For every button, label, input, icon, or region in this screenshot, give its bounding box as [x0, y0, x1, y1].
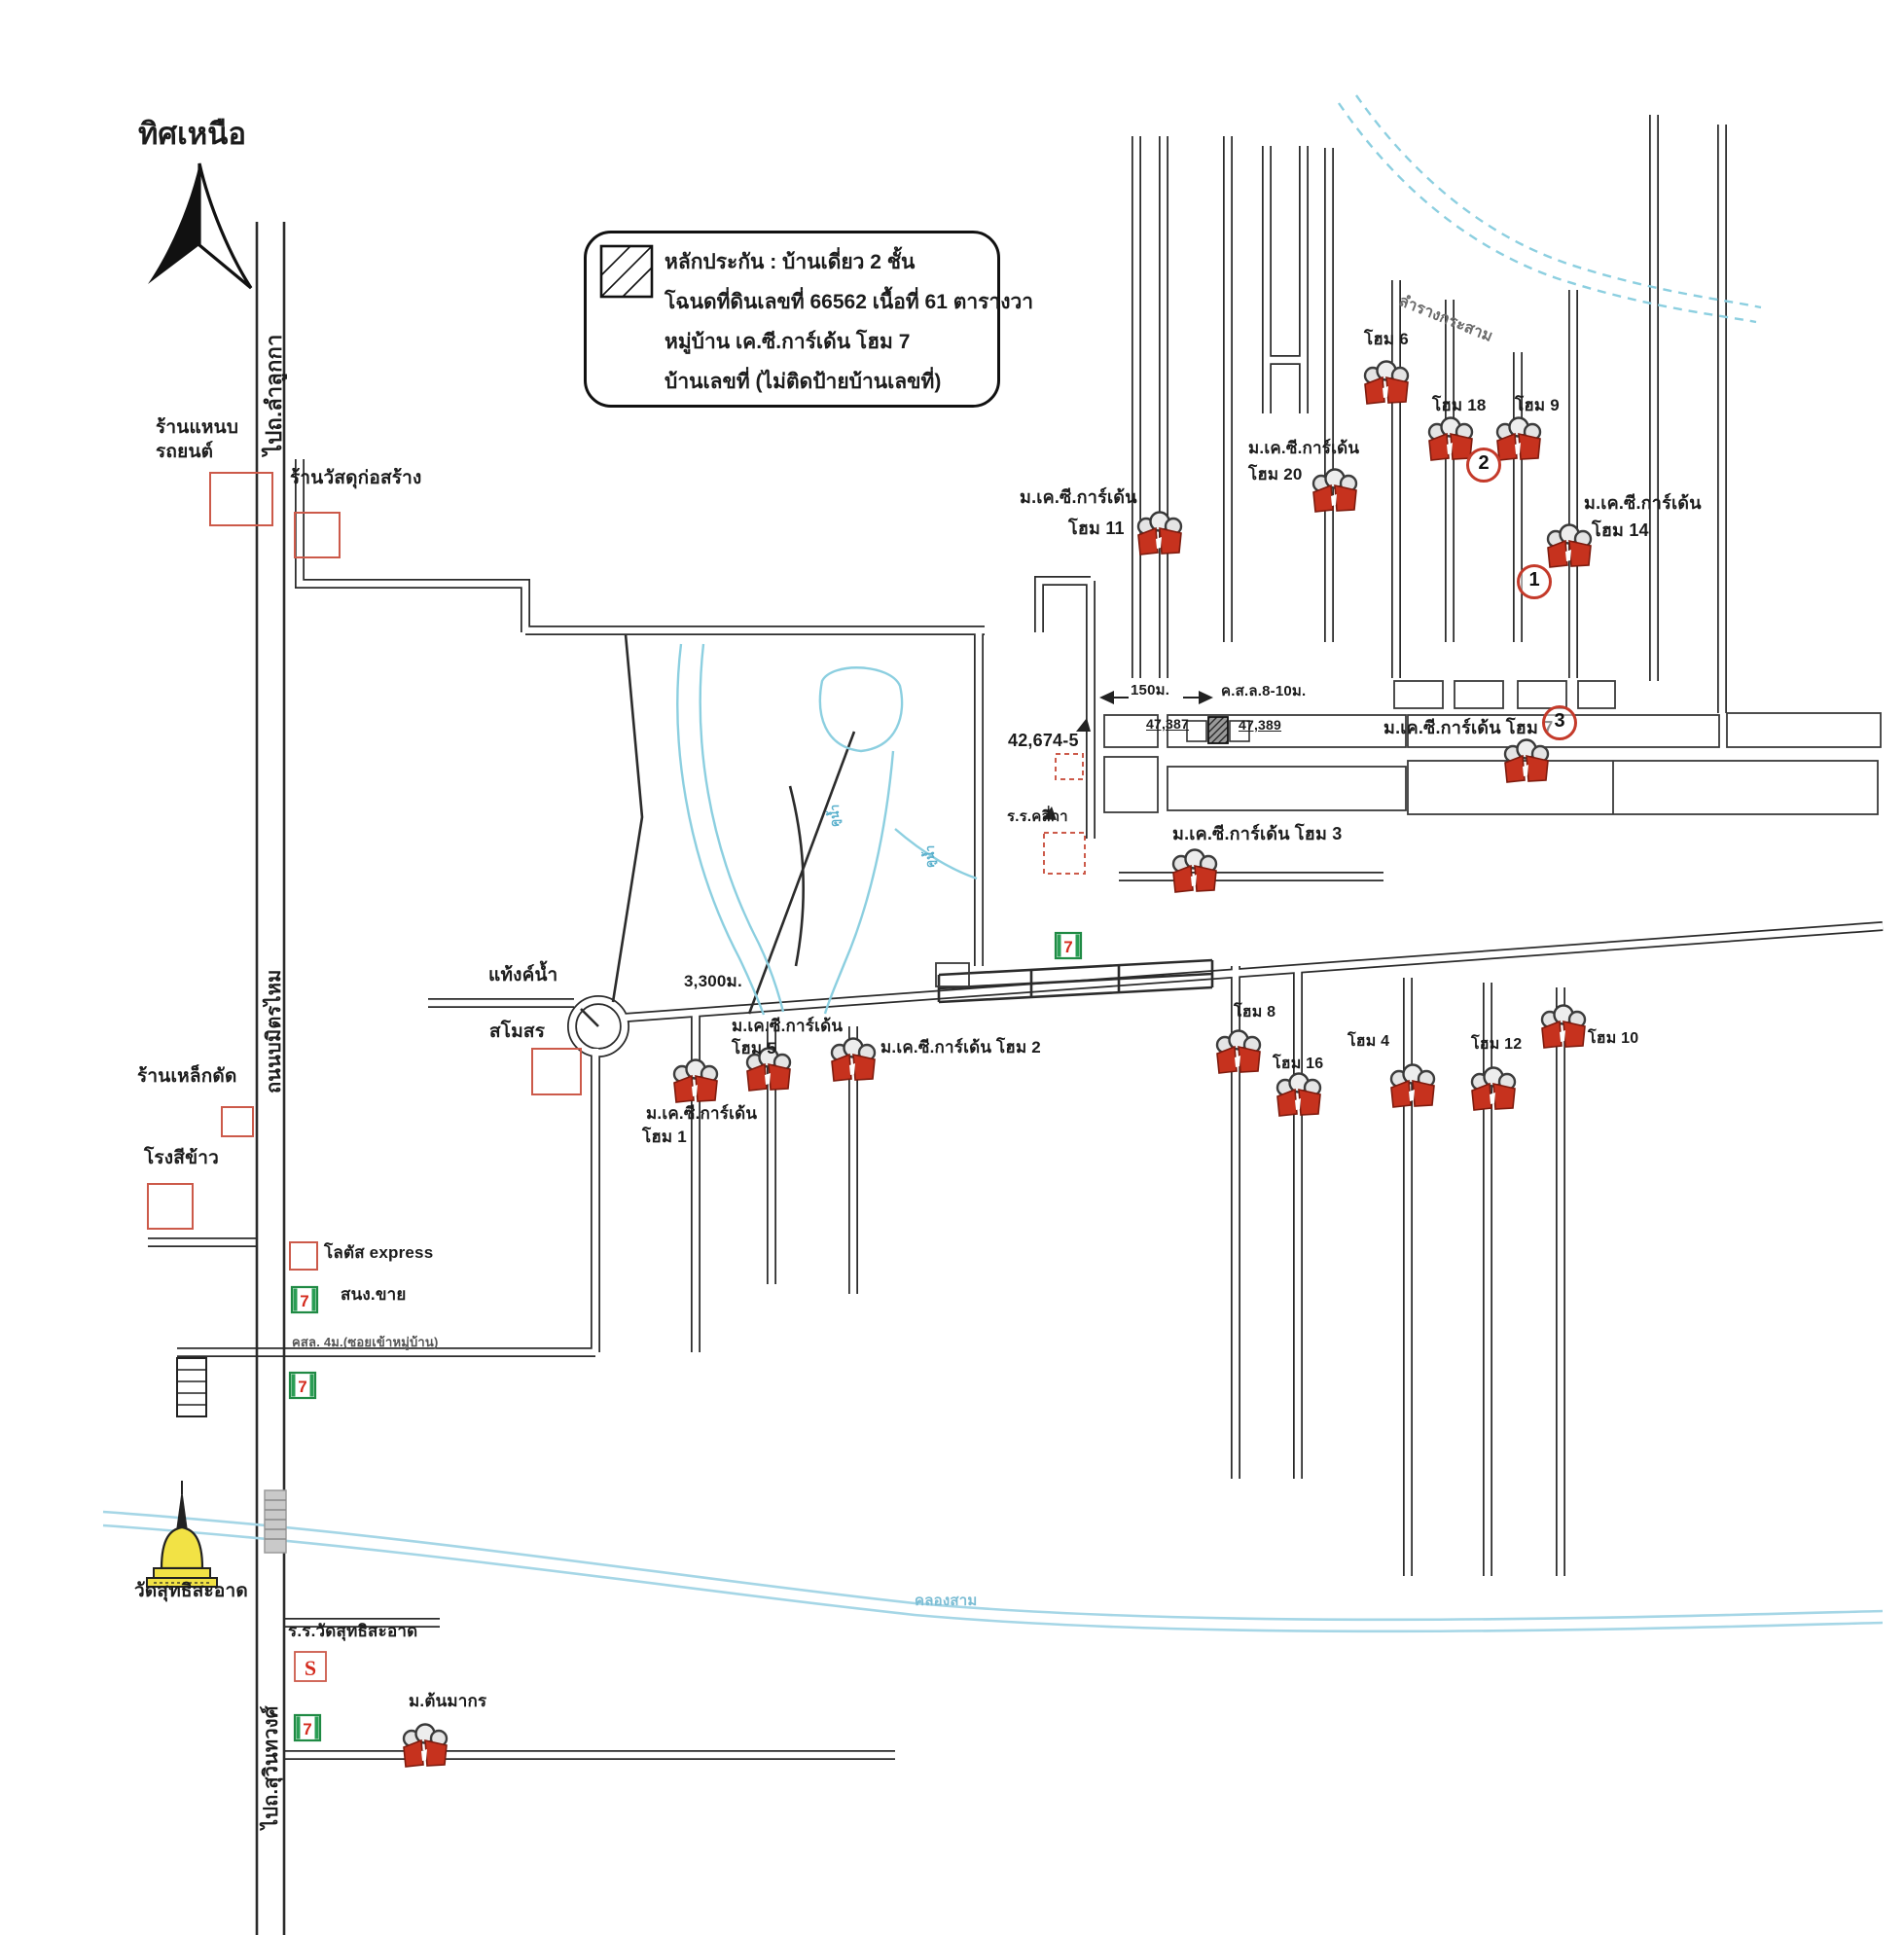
label-soi-road-note: คสล. 4ม.(ซอยเข้าหมู่บ้าน): [292, 1335, 439, 1351]
label-kc-garden-5-line1: ม.เค.ซี.การ์เด้น: [732, 1016, 843, 1037]
label-parcel-47387: 47,387: [1146, 715, 1189, 733]
labels-layer: ไปถ.ลำลูกการ้านแหนบ รถยนต์ร้านวัสดุก่อสร…: [0, 0, 1904, 1935]
label-temple-school: ร.ร.วัดสุทธิสะอาด: [288, 1621, 417, 1642]
label-parcel-42674: 42,674-5: [1008, 730, 1079, 752]
label-lotus-express: โลตัส express: [324, 1242, 433, 1264]
label-sales-office: สนง.ขาย: [341, 1284, 407, 1306]
label-temple-name: วัดสุทธิสะอาด: [134, 1580, 248, 1604]
label-mu-tonmakorn: ม.ต้นมากร: [409, 1691, 486, 1712]
label-parcel-47389: 47,389: [1239, 716, 1281, 734]
label-kc-garden-11-line2: โฮม 11: [1068, 518, 1125, 540]
label-road-bamit: ถนนบมิตรไหม: [262, 970, 287, 1094]
label-home-18: โฮม 18: [1432, 395, 1487, 416]
label-home-16: โฮม 16: [1273, 1055, 1323, 1075]
label-kc-garden-3: ม.เค.ซี.การ์เด้น โฮม 3: [1172, 823, 1342, 845]
label-kc-garden-14-line2: โฮม 14: [1592, 520, 1649, 542]
label-ditch-2: คูน้ำ: [923, 845, 939, 868]
label-home-9: โฮม 9: [1515, 395, 1560, 416]
label-school-klika: ร.ร.คลี่กา: [1007, 807, 1068, 827]
label-kc-garden-11-line1: ม.เค.ซี.การ์เด้น: [1020, 486, 1137, 509]
map-canvas: S 7777 ทิศเหนือ หลักประกัน : บ้านเดี่ยว …: [0, 0, 1904, 1935]
label-kc-garden-1-line2: โฮม 1: [642, 1127, 687, 1148]
label-home-8: โฮม 8: [1234, 1003, 1275, 1023]
label-to-suwinthawong: ไปถ.สุวินทวงศ์: [259, 1705, 284, 1829]
label-kc-garden-20-line1: ม.เค.ซี.การ์เด้น: [1248, 438, 1359, 459]
label-dist-3300m: 3,300ม.: [684, 971, 742, 992]
label-ditch-1: คูน้ำ: [828, 805, 844, 827]
label-dist-150m: 150ม.: [1131, 681, 1169, 700]
label-kc-garden-5-line2: โฮม 5: [732, 1038, 776, 1059]
label-road-csl-8-10: ค.ส.ล.8-10ม.: [1221, 682, 1306, 701]
label-water-tank: แท้งค์น้ำ: [488, 964, 557, 988]
label-clubhouse: สโมสร: [489, 1021, 545, 1045]
label-kc-garden-2: ม.เค.ซี.การ์เด้น โฮม 2: [880, 1037, 1041, 1058]
label-kc-garden-7: ม.เค.ซี.การ์เด้น โฮม 7: [1383, 717, 1553, 739]
label-home-6: โฮม 6: [1364, 329, 1409, 350]
label-home-4: โฮม 4: [1347, 1032, 1389, 1053]
circled-number-1: 1: [1517, 564, 1552, 599]
label-kc-garden-20-line2: โฮม 20: [1248, 464, 1303, 485]
label-kc-garden-14-line1: ม.เค.ซี.การ์เด้น: [1584, 492, 1702, 515]
label-klong-sam: คลองสาม: [915, 1592, 977, 1611]
label-shop-iron: ร้านเหล็กดัด: [137, 1065, 237, 1090]
label-kc-garden-1-line1: ม.เค.ซี.การ์เด้น: [646, 1103, 757, 1125]
label-home-10: โฮม 10: [1588, 1029, 1638, 1050]
label-rice-mill: โรงสีข้าว: [144, 1147, 219, 1171]
label-to-lamlukka-road: ไปถ.ลำลูกกา: [261, 334, 289, 455]
label-stream-name: ลำรางกระสาม: [1395, 292, 1495, 348]
label-shop-construction: ร้านวัสดุก่อสร้าง: [290, 467, 422, 491]
label-home-12: โฮม 12: [1471, 1035, 1522, 1056]
circled-number-3: 3: [1542, 705, 1577, 740]
label-shop-leaf-spring: ร้านแหนบ รถยนต์: [156, 416, 238, 464]
circled-number-2: 2: [1466, 448, 1501, 483]
